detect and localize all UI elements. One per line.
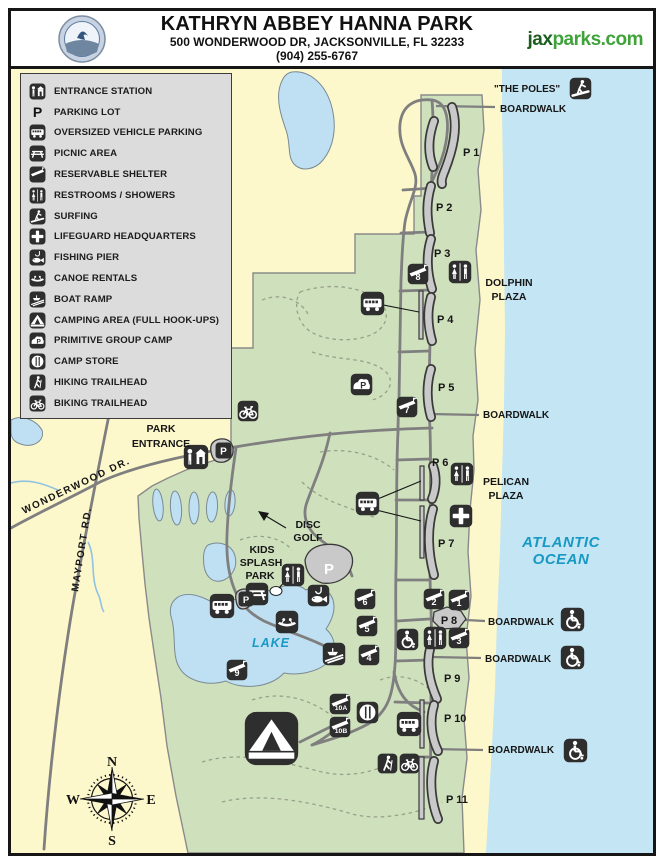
parking-label-p5: P 5 [438, 382, 454, 394]
fishing-pier-icon [29, 249, 46, 266]
legend: ENTRANCE STATION PPARKING LOT OVERSIZED … [20, 73, 232, 419]
restrooms-icon [451, 463, 473, 485]
legend-item-reservable-shelter: RESERVABLE SHELTER [29, 164, 231, 185]
website-suffix: parks.com [552, 29, 643, 50]
parking-label-p7: P 7 [438, 538, 454, 550]
disc-golf-parking-letter: P [324, 561, 334, 578]
picnic-area-icon [29, 145, 46, 162]
page: KATHRYN ABBEY HANNA PARK 500 WONDERWOOD … [0, 0, 664, 864]
splash-park-marker [270, 587, 282, 596]
atlantic-ocean-label: OCEAN [533, 551, 590, 568]
shelter-7: 7 [404, 405, 409, 415]
wheelchair-access-icon [564, 739, 587, 762]
reservable-shelter-icon [29, 166, 46, 183]
boat-ramp-icon [323, 643, 345, 665]
legend-item-lifeguard-headquarters: LIFEGUARD HEADQUARTERS [29, 227, 231, 248]
park-address: 500 WONDERWOOD DR, JACKSONVILLE, FL 3223… [121, 35, 513, 49]
wheelchair-access-icon [561, 646, 584, 669]
legend-item-primitive-group-camp: PRIMITIVE GROUP CAMP [29, 331, 231, 352]
biking-trailhead-icon [238, 401, 259, 422]
shelter-10b: 10B [335, 728, 348, 735]
lake-label: LAKE [252, 636, 290, 650]
parking-label-p8: P 8 [441, 615, 457, 627]
canoe-rentals-icon [29, 270, 46, 287]
fishing-pier-icon [308, 585, 330, 607]
website-logo: jaxparks.com [528, 29, 643, 51]
legend-item-oversized-vehicle-parking: OVERSIZED VEHICLE PARKING [29, 123, 231, 144]
map-frame: KATHRYN ABBEY HANNA PARK 500 WONDERWOOD … [8, 8, 656, 856]
restrooms-icon [424, 627, 446, 649]
surfing-icon [570, 78, 592, 100]
restrooms-icon [449, 261, 471, 283]
boardwalk-label: BOARDWALK [500, 104, 567, 115]
legend-item-biking-trailhead: BIKING TRAILHEAD [29, 393, 231, 414]
entrance-station-icon [29, 83, 46, 100]
parking-label-p1: P 1 [463, 147, 479, 159]
compass-east: E [146, 793, 155, 808]
header: KATHRYN ABBEY HANNA PARK 500 WONDERWOOD … [11, 11, 653, 69]
pelican-plaza-label: PELICAN [483, 476, 529, 488]
parking-label-p11: P 11 [446, 794, 468, 806]
kids-splash-park-label: SPLASH [240, 557, 283, 569]
page-title: KATHRYN ABBEY HANNA PARK [121, 13, 513, 35]
parking-label-p3: P 3 [434, 248, 450, 260]
legend-item-camp-store: CAMP STORE [29, 351, 231, 372]
legend-item-canoe-rentals: CANOE RENTALS [29, 268, 231, 289]
canoe-rentals-icon [276, 611, 298, 633]
boat-ramp-icon [29, 291, 46, 308]
legend-item-fishing-pier: FISHING PIER [29, 247, 231, 268]
wheelchair-access-icon [561, 608, 584, 631]
restrooms-showers-icon [29, 187, 46, 204]
hiking-trailhead-icon [378, 754, 398, 774]
legend-item-entrance-station: ENTRANCE STATION [29, 81, 231, 102]
shelter-10a: 10A [335, 705, 348, 712]
boardwalk-label: BOARDWALK [488, 745, 555, 756]
parking-label-p10: P 10 [444, 713, 466, 725]
camp-store-icon [29, 353, 46, 370]
parking-label-p9: P 9 [444, 673, 460, 685]
shelter-2: 2 [431, 597, 436, 607]
oversized-vehicle-parking-icon [29, 124, 46, 141]
shelter-1: 1 [456, 598, 461, 608]
parking-lot-icon [216, 443, 232, 459]
shelter-5: 5 [364, 624, 369, 634]
dolphin-plaza-label: DOLPHIN [485, 277, 532, 289]
biking-trailhead-icon [400, 754, 420, 774]
boardwalk-label: BOARDWALK [485, 654, 552, 665]
dolphin-plaza-label: PLAZA [492, 291, 527, 303]
compass-west: W [66, 793, 80, 808]
legend-item-restrooms-showers: RESTROOMS / SHOWERS [29, 185, 231, 206]
parking-lot-icon: P [29, 104, 46, 121]
camp-store-icon [357, 702, 379, 724]
oversized-vehicle-parking-icon [210, 594, 234, 618]
camping-area-icon [29, 312, 46, 329]
parking-label-p2: P 2 [436, 202, 452, 214]
parking-lot-icon [239, 592, 254, 607]
legend-item-camping-area: CAMPING AREA (FULL HOOK-UPS) [29, 310, 231, 331]
shelter-9: 9 [234, 668, 239, 678]
compass-north: N [107, 755, 117, 770]
parking-label-p4: P 4 [437, 314, 454, 326]
parking-label-p6: P 6 [432, 457, 448, 469]
hiking-trailhead-icon [29, 374, 46, 391]
camping-area-icon [245, 712, 298, 765]
oversized-vehicle-parking-icon [361, 292, 384, 315]
biking-trailhead-icon [29, 395, 46, 412]
shelter-8: 8 [415, 272, 420, 282]
kids-splash-park-label: PARK [246, 570, 275, 582]
legend-item-parking-lot: PPARKING LOT [29, 102, 231, 123]
jaxparks-logo [57, 14, 107, 64]
legend-item-boat-ramp: BOAT RAMP [29, 289, 231, 310]
lifeguard-headquarters-icon [450, 505, 472, 527]
park-entrance-label: PARK [147, 423, 176, 435]
park-entrance-label: ENTRANCE [132, 438, 190, 450]
header-title-block: KATHRYN ABBEY HANNA PARK 500 WONDERWOOD … [121, 13, 513, 63]
disc-golf-label: DISC [295, 519, 321, 531]
compass-south: S [108, 834, 116, 849]
surfing-icon [29, 208, 46, 225]
shelter-3: 3 [456, 636, 461, 646]
pelican-plaza-label: PLAZA [489, 490, 524, 502]
restrooms-icon [282, 564, 304, 586]
website-prefix: jax [528, 29, 553, 50]
primitive-group-camp-icon [351, 374, 373, 396]
atlantic-ocean-label: ATLANTIC [521, 534, 601, 551]
park-phone: (904) 255-6767 [121, 49, 513, 63]
shelter-4: 4 [366, 653, 371, 663]
shelter-6: 6 [362, 597, 367, 607]
legend-item-picnic-area: PICNIC AREA [29, 143, 231, 164]
primitive-group-camp-icon [29, 332, 46, 349]
legend-item-hiking-trailhead: HIKING TRAILHEAD [29, 372, 231, 393]
atlantic-ocean-water [486, 69, 653, 853]
kids-splash-park-label: KIDS [249, 544, 274, 556]
oversized-vehicle-parking-icon [356, 492, 379, 515]
oversized-vehicle-parking-icon [397, 712, 421, 736]
legend-item-surfing: SURFING [29, 206, 231, 227]
boardwalk-label: BOARDWALK [483, 410, 550, 421]
lifeguard-headquarters-icon [29, 228, 46, 245]
disc-golf-label: GOLF [293, 532, 323, 544]
the-poles-label: "THE POLES" [494, 84, 560, 95]
boardwalk-label: BOARDWALK [488, 617, 555, 628]
wheelchair-access-icon [397, 629, 419, 651]
